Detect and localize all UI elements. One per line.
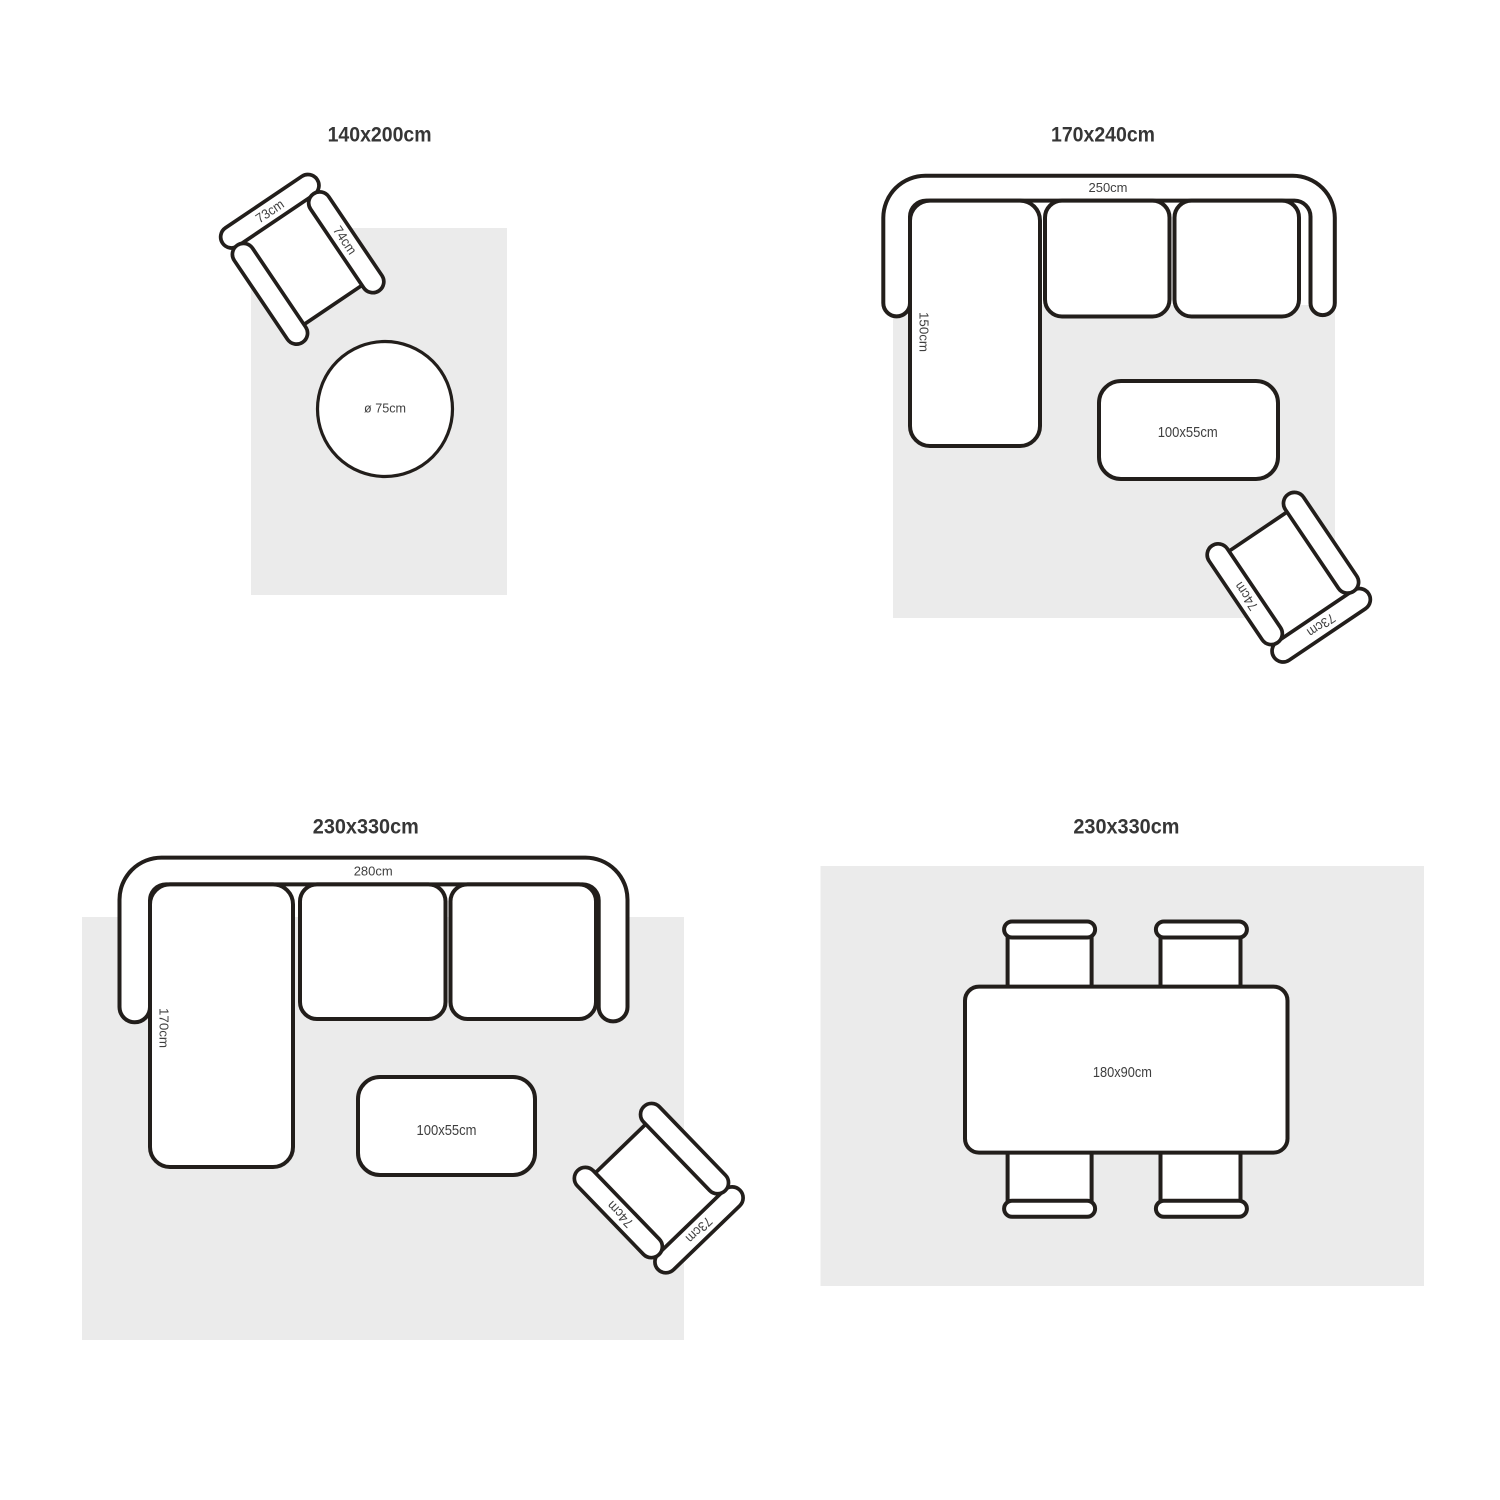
svg-text:ø 75cm: ø 75cm [364,401,406,416]
svg-text:180x90cm: 180x90cm [1093,1064,1152,1081]
svg-text:170cm: 170cm [157,1008,172,1048]
svg-text:170x240cm: 170x240cm [1051,123,1155,146]
svg-text:280cm: 280cm [354,864,393,879]
svg-text:100x55cm: 100x55cm [417,1122,477,1139]
svg-text:230x330cm: 230x330cm [313,816,419,839]
svg-text:150cm: 150cm [917,312,932,352]
svg-text:230x330cm: 230x330cm [1073,816,1179,839]
svg-text:140x200cm: 140x200cm [328,123,432,146]
svg-text:250cm: 250cm [1089,180,1128,195]
svg-text:100x55cm: 100x55cm [1158,424,1218,441]
